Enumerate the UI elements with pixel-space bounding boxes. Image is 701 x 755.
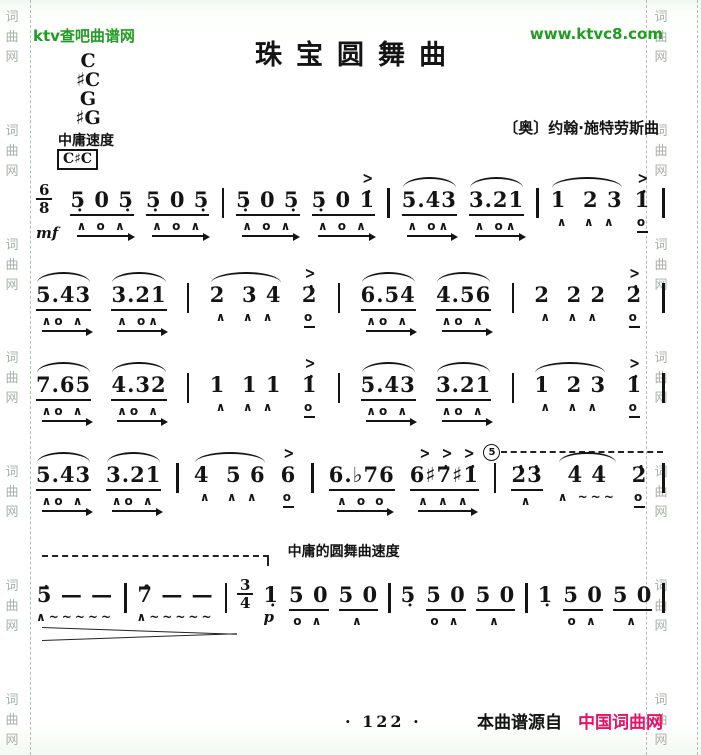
barline: [494, 463, 497, 493]
notes-text: 7̂ — —: [137, 583, 215, 607]
notes-text: 3.21: [469, 188, 524, 216]
note-group: 5 0∧: [339, 571, 379, 628]
harmonica-key: ♯G: [62, 109, 114, 128]
blow-draw-marks: o ∧: [430, 615, 461, 628]
notes-text: 5̇ — —: [36, 583, 114, 607]
note-group: 7.65∧o ∧: [36, 361, 91, 422]
notes-text: 1̣: [538, 583, 554, 607]
notes-text: 5.43: [36, 463, 91, 491]
note-group: 4̇ 4̇∧ ~~~: [558, 451, 617, 504]
slur: [37, 452, 90, 463]
barline: [225, 583, 228, 613]
music-notation: 68mf5̣ 0 5̣∧ o ∧5̣ 0 5̣∧ o ∧5̣ 0 5̣∧ o ∧…: [36, 176, 665, 657]
notes-text: 5̣: [401, 583, 417, 607]
notes-text: 2̇: [632, 463, 648, 487]
octave-continuation-line: [42, 555, 268, 557]
notes-text: 6.54: [361, 283, 416, 311]
notes-text: 5.43: [36, 283, 91, 311]
note-group: 1̣p: [263, 571, 279, 625]
notes-text: 2̇: [302, 283, 318, 307]
composer-credit: 〔奥〕约翰·施特劳斯曲: [503, 117, 659, 138]
blow-draw-marks: ∧ ∧ ∧: [418, 495, 471, 512]
barline: [387, 188, 390, 218]
barline: [662, 188, 665, 218]
accent-mark: >: [305, 356, 316, 374]
notes-text: 2 2 2: [534, 283, 606, 307]
barline: [525, 583, 528, 613]
note-group: 2 2 2∧ ∧ ∧: [534, 271, 606, 324]
notes-text: 1 1 1: [210, 373, 282, 397]
music-system: 68mf5̣ 0 5̣∧ o ∧5̣ 0 5̣∧ o ∧5̣ 0 5̣∧ o ∧…: [36, 176, 665, 242]
notes-text: 5̣ 0 5̣: [146, 188, 209, 216]
note-group: 7̂ — —∧~~~~~: [137, 571, 215, 624]
blow-draw-marks: ∧: [626, 615, 639, 628]
notes-text: 4.32: [111, 373, 166, 401]
notes-text: 3.21: [106, 463, 161, 491]
dashed-rail-left: [30, 0, 31, 755]
barline: [338, 373, 341, 403]
watermark-text: 词曲网: [4, 691, 20, 751]
notes-text: 5 0: [289, 583, 329, 611]
note-group: 3.21∧ o∧: [469, 176, 524, 237]
notes-text: 4.56: [436, 283, 491, 311]
blow-draw-marks: ∧o ∧: [42, 495, 86, 512]
barline: [662, 373, 665, 403]
barline: [512, 283, 515, 313]
note-group: 3.21∧o ∧: [106, 451, 161, 512]
notes-text: 2̇: [626, 283, 642, 307]
blow-draw-marks: ∧o ∧: [42, 315, 86, 332]
notes-text: 4 5 6: [194, 463, 266, 487]
blow-draw-marks: ∧ ∧ ∧: [200, 491, 260, 504]
notes-text: 2 3 4: [210, 283, 282, 307]
note-group: >2̇o: [626, 271, 642, 328]
blow-draw-marks: ∧ o∧: [407, 220, 451, 237]
note-group: 5.43∧o ∧: [36, 271, 91, 332]
blow-draw-marks: ∧o ∧: [366, 315, 410, 332]
note-group: 6.54∧o ∧: [361, 271, 416, 332]
accent-mark: >: [305, 266, 316, 284]
source-credit: 本曲谱源自中国词曲网: [477, 708, 663, 733]
note-group: 2̇o: [632, 451, 648, 508]
accent-mark: >: [464, 446, 475, 464]
accent-mark: >: [629, 266, 640, 284]
note-group: 4.56∧o ∧: [436, 271, 491, 332]
watermark-text: 词曲网: [4, 122, 20, 182]
accent-mark: >: [637, 171, 648, 189]
watermark-column-left: 词曲网词曲网词曲网词曲网词曲网词曲网词曲网: [4, 8, 20, 751]
slur: [107, 452, 160, 463]
notes-text: 5 0: [613, 583, 653, 611]
slur: [552, 177, 622, 188]
note-group: 1̣: [538, 571, 554, 624]
blow-draw-marks: o: [637, 216, 648, 233]
dashed-rail-right-outer: [697, 0, 698, 755]
notes-text: 6.♭76: [329, 463, 395, 491]
note-group: 5 0o ∧: [426, 571, 466, 628]
blow-draw-marks: o: [283, 491, 294, 508]
blow-draw-marks: o: [304, 311, 315, 328]
blow-draw-marks: ∧ ∧ ∧: [557, 216, 617, 229]
notes-text: 5.43: [361, 373, 416, 401]
accent-mark: >: [629, 356, 640, 374]
notes-text: 2̇3̇: [511, 463, 542, 491]
notes-text: 1̇: [302, 373, 318, 397]
note-group: 1 1 1∧ ∧ ∧: [210, 361, 282, 414]
note-group: 4.32∧o ∧: [111, 361, 166, 422]
blow-draw-marks: o: [629, 401, 640, 418]
watermark-text: 词曲网: [4, 236, 20, 296]
note-group: 5.43∧o ∧: [361, 361, 416, 422]
blow-draw-marks: ∧ o o: [337, 495, 387, 512]
blow-draw-marks: ∧ ~~~: [558, 491, 617, 504]
note-group: 5 0∧: [613, 571, 653, 628]
dynamic-marking: mf: [36, 224, 58, 242]
notes-text: 3.21: [436, 373, 491, 401]
note-group: 1 2 3∧ ∧ ∧: [534, 361, 606, 414]
slur: [112, 272, 165, 283]
source-prefix: 本曲谱源自: [477, 713, 562, 733]
blow-draw-marks: ∧o ∧: [442, 315, 486, 332]
note-group: >>>6♯7̇♯1̇∧ ∧ ∧: [410, 451, 479, 512]
watermark-text: 词曲网: [4, 463, 20, 523]
notes-text: 6♯7̇♯1̇: [410, 463, 479, 491]
music-system: 中庸的圆舞曲速度5̇ — —∧~~~~~7̂ — —∧~~~~~341̣p5 0…: [36, 541, 665, 628]
slur: [403, 177, 456, 188]
slur: [211, 272, 281, 283]
barline: [176, 463, 179, 493]
note-group: 5 0o ∧: [563, 571, 603, 628]
note-group: 5.43∧o ∧: [36, 451, 91, 512]
blow-draw-marks: ∧ ∧ ∧: [540, 401, 600, 414]
accent-mark: >: [283, 446, 294, 464]
notes-text: 5 0: [339, 583, 379, 611]
blow-draw-marks: ∧o ∧: [117, 405, 161, 422]
note-group: 1 2 3∧ ∧ ∧: [551, 176, 623, 229]
notes-text: 5 0: [426, 583, 466, 611]
slur: [195, 452, 265, 463]
note-group: 4 5 6∧ ∧ ∧: [194, 451, 266, 504]
note-group: 5̣ 0 5̣∧ o ∧: [146, 176, 209, 237]
score-page: 词曲网词曲网词曲网词曲网词曲网词曲网词曲网 词曲网词曲网词曲网词曲网词曲网词曲网…: [0, 0, 701, 755]
watermark-text: 词曲网: [4, 577, 20, 637]
note-group: 5̣ 0 5̣∧ o ∧: [236, 176, 299, 237]
decrescendo-hairpin: [42, 627, 237, 643]
notes-text: 1̣: [263, 583, 279, 607]
slur: [437, 362, 490, 373]
note-group: >2̇o: [302, 271, 318, 328]
notes-text: 1̇: [626, 373, 642, 397]
accent-mark: >: [362, 171, 373, 189]
notes-text: 7.65: [36, 373, 91, 401]
notes-text: 5̣ 0 1̇: [312, 188, 375, 216]
slur: [37, 272, 90, 283]
watermark-text: 词曲网: [4, 349, 20, 409]
blow-draw-marks: ∧ o ∧: [242, 220, 293, 237]
note-group: 5.43∧ o∧: [402, 176, 457, 237]
barline: [512, 373, 515, 403]
page-number: · 122 ·: [345, 712, 422, 731]
music-system: 7.65∧o ∧4.32∧o ∧1 1 1∧ ∧ ∧>1̇o5.43∧o ∧3.…: [36, 361, 665, 422]
slur: [112, 362, 165, 373]
blow-draw-marks: ∧ o ∧: [318, 220, 369, 237]
notes-text: 5̣ 0 5̣: [70, 188, 133, 216]
blow-draw-marks: ∧o ∧: [112, 495, 156, 512]
barline: [662, 463, 665, 493]
waltz-tempo-label: 中庸的圆舞曲速度: [288, 541, 400, 561]
accent-mark: >: [442, 446, 453, 464]
slur: [470, 177, 523, 188]
blow-draw-marks: ∧ ∧ ∧: [216, 311, 276, 324]
barline: [536, 188, 539, 218]
tempo-marking: 中庸速度: [58, 130, 114, 150]
note-group: 5̣: [401, 571, 417, 624]
blow-draw-marks: ∧o ∧: [442, 405, 486, 422]
barline: [662, 583, 665, 613]
accent-mark: >: [419, 446, 430, 464]
dynamic-marking: p: [263, 608, 274, 626]
blow-draw-marks: ∧~~~~~: [137, 611, 215, 624]
notes-text: 5̣ 0 5̣: [236, 188, 299, 216]
note-group: 5̣ 0 5̣∧ o ∧: [70, 176, 133, 237]
barline: [338, 283, 341, 313]
note-group: >6o: [281, 451, 297, 508]
note-group: 6.♭76∧ o o: [329, 451, 395, 512]
blow-draw-marks: ∧o ∧: [42, 405, 86, 422]
blow-draw-marks: ∧ o∧: [117, 315, 161, 332]
key-box: C♯C: [57, 149, 98, 170]
note-group: >1̇o: [626, 361, 642, 418]
slur: [437, 272, 490, 283]
notes-text: 4̇ 4̇: [558, 463, 617, 487]
barline: [388, 583, 391, 613]
note-group: >1̇o: [302, 361, 318, 418]
blow-draw-marks: ∧ o∧: [475, 220, 519, 237]
barline: [222, 188, 225, 218]
barline: [662, 283, 665, 313]
barline: [187, 373, 190, 403]
slur: [37, 362, 90, 373]
notes-text: 1 2 3: [551, 188, 623, 212]
barline: [311, 463, 314, 493]
note-group: 5̇ — —∧~~~~~: [36, 571, 114, 624]
blow-draw-marks: ∧: [521, 495, 534, 508]
blow-draw-marks: ∧~~~~~: [36, 611, 114, 624]
slur: [535, 362, 605, 373]
note-group: >1̇o: [635, 176, 651, 233]
note-group: 3.21∧o ∧: [436, 361, 491, 422]
music-system: 5.43∧o ∧3.21∧ o∧2 3 4∧ ∧ ∧>2̇o6.54∧o ∧4.…: [36, 271, 665, 332]
notes-text: 1̇: [635, 188, 651, 212]
slur: [362, 362, 415, 373]
blow-draw-marks: o: [629, 311, 640, 328]
blow-draw-marks: ∧ o ∧: [152, 220, 203, 237]
note-group: >5̣ 0 1̇∧ o ∧: [312, 176, 375, 237]
blow-draw-marks: ∧ o ∧: [77, 220, 128, 237]
time-signature: 68mf: [36, 176, 58, 242]
note-group: 5 0o ∧: [289, 571, 329, 628]
blow-draw-marks: ∧ ∧ ∧: [540, 311, 600, 324]
blow-draw-marks: o ∧: [293, 615, 324, 628]
music-system: 55.43∧o ∧3.21∧o ∧4 5 6∧ ∧ ∧>6o6.♭76∧ o o…: [36, 451, 665, 512]
harmonica-key-list: C♯CG♯G: [62, 52, 114, 128]
notes-text: 1 2 3: [534, 373, 606, 397]
note-group: 3.21∧ o∧: [111, 271, 166, 332]
time-signature: 34: [237, 571, 253, 611]
blow-draw-marks: o ∧: [568, 615, 599, 628]
note-group: 2 3 4∧ ∧ ∧: [210, 271, 282, 324]
blow-draw-marks: ∧ ∧ ∧: [216, 401, 276, 414]
notes-text: 5 0: [476, 583, 516, 611]
note-group: 2̇3̇∧: [511, 451, 542, 508]
barline: [124, 583, 127, 613]
notes-text: 6: [281, 463, 297, 487]
slur: [362, 272, 415, 283]
source-site-link[interactable]: 中国词曲网: [578, 713, 663, 733]
notes-text: 5 0: [563, 583, 603, 611]
blow-draw-marks: o: [634, 491, 645, 508]
barline: [187, 283, 190, 313]
blow-draw-marks: o: [304, 401, 315, 418]
blow-draw-marks: ∧: [352, 615, 365, 628]
notes-text: 3.21: [111, 283, 166, 311]
notes-text: 5.43: [402, 188, 457, 216]
blow-draw-marks: ∧: [489, 615, 502, 628]
blow-draw-marks: ∧o ∧: [366, 405, 410, 422]
note-group: 5 0∧: [476, 571, 516, 628]
slur: [559, 452, 616, 463]
